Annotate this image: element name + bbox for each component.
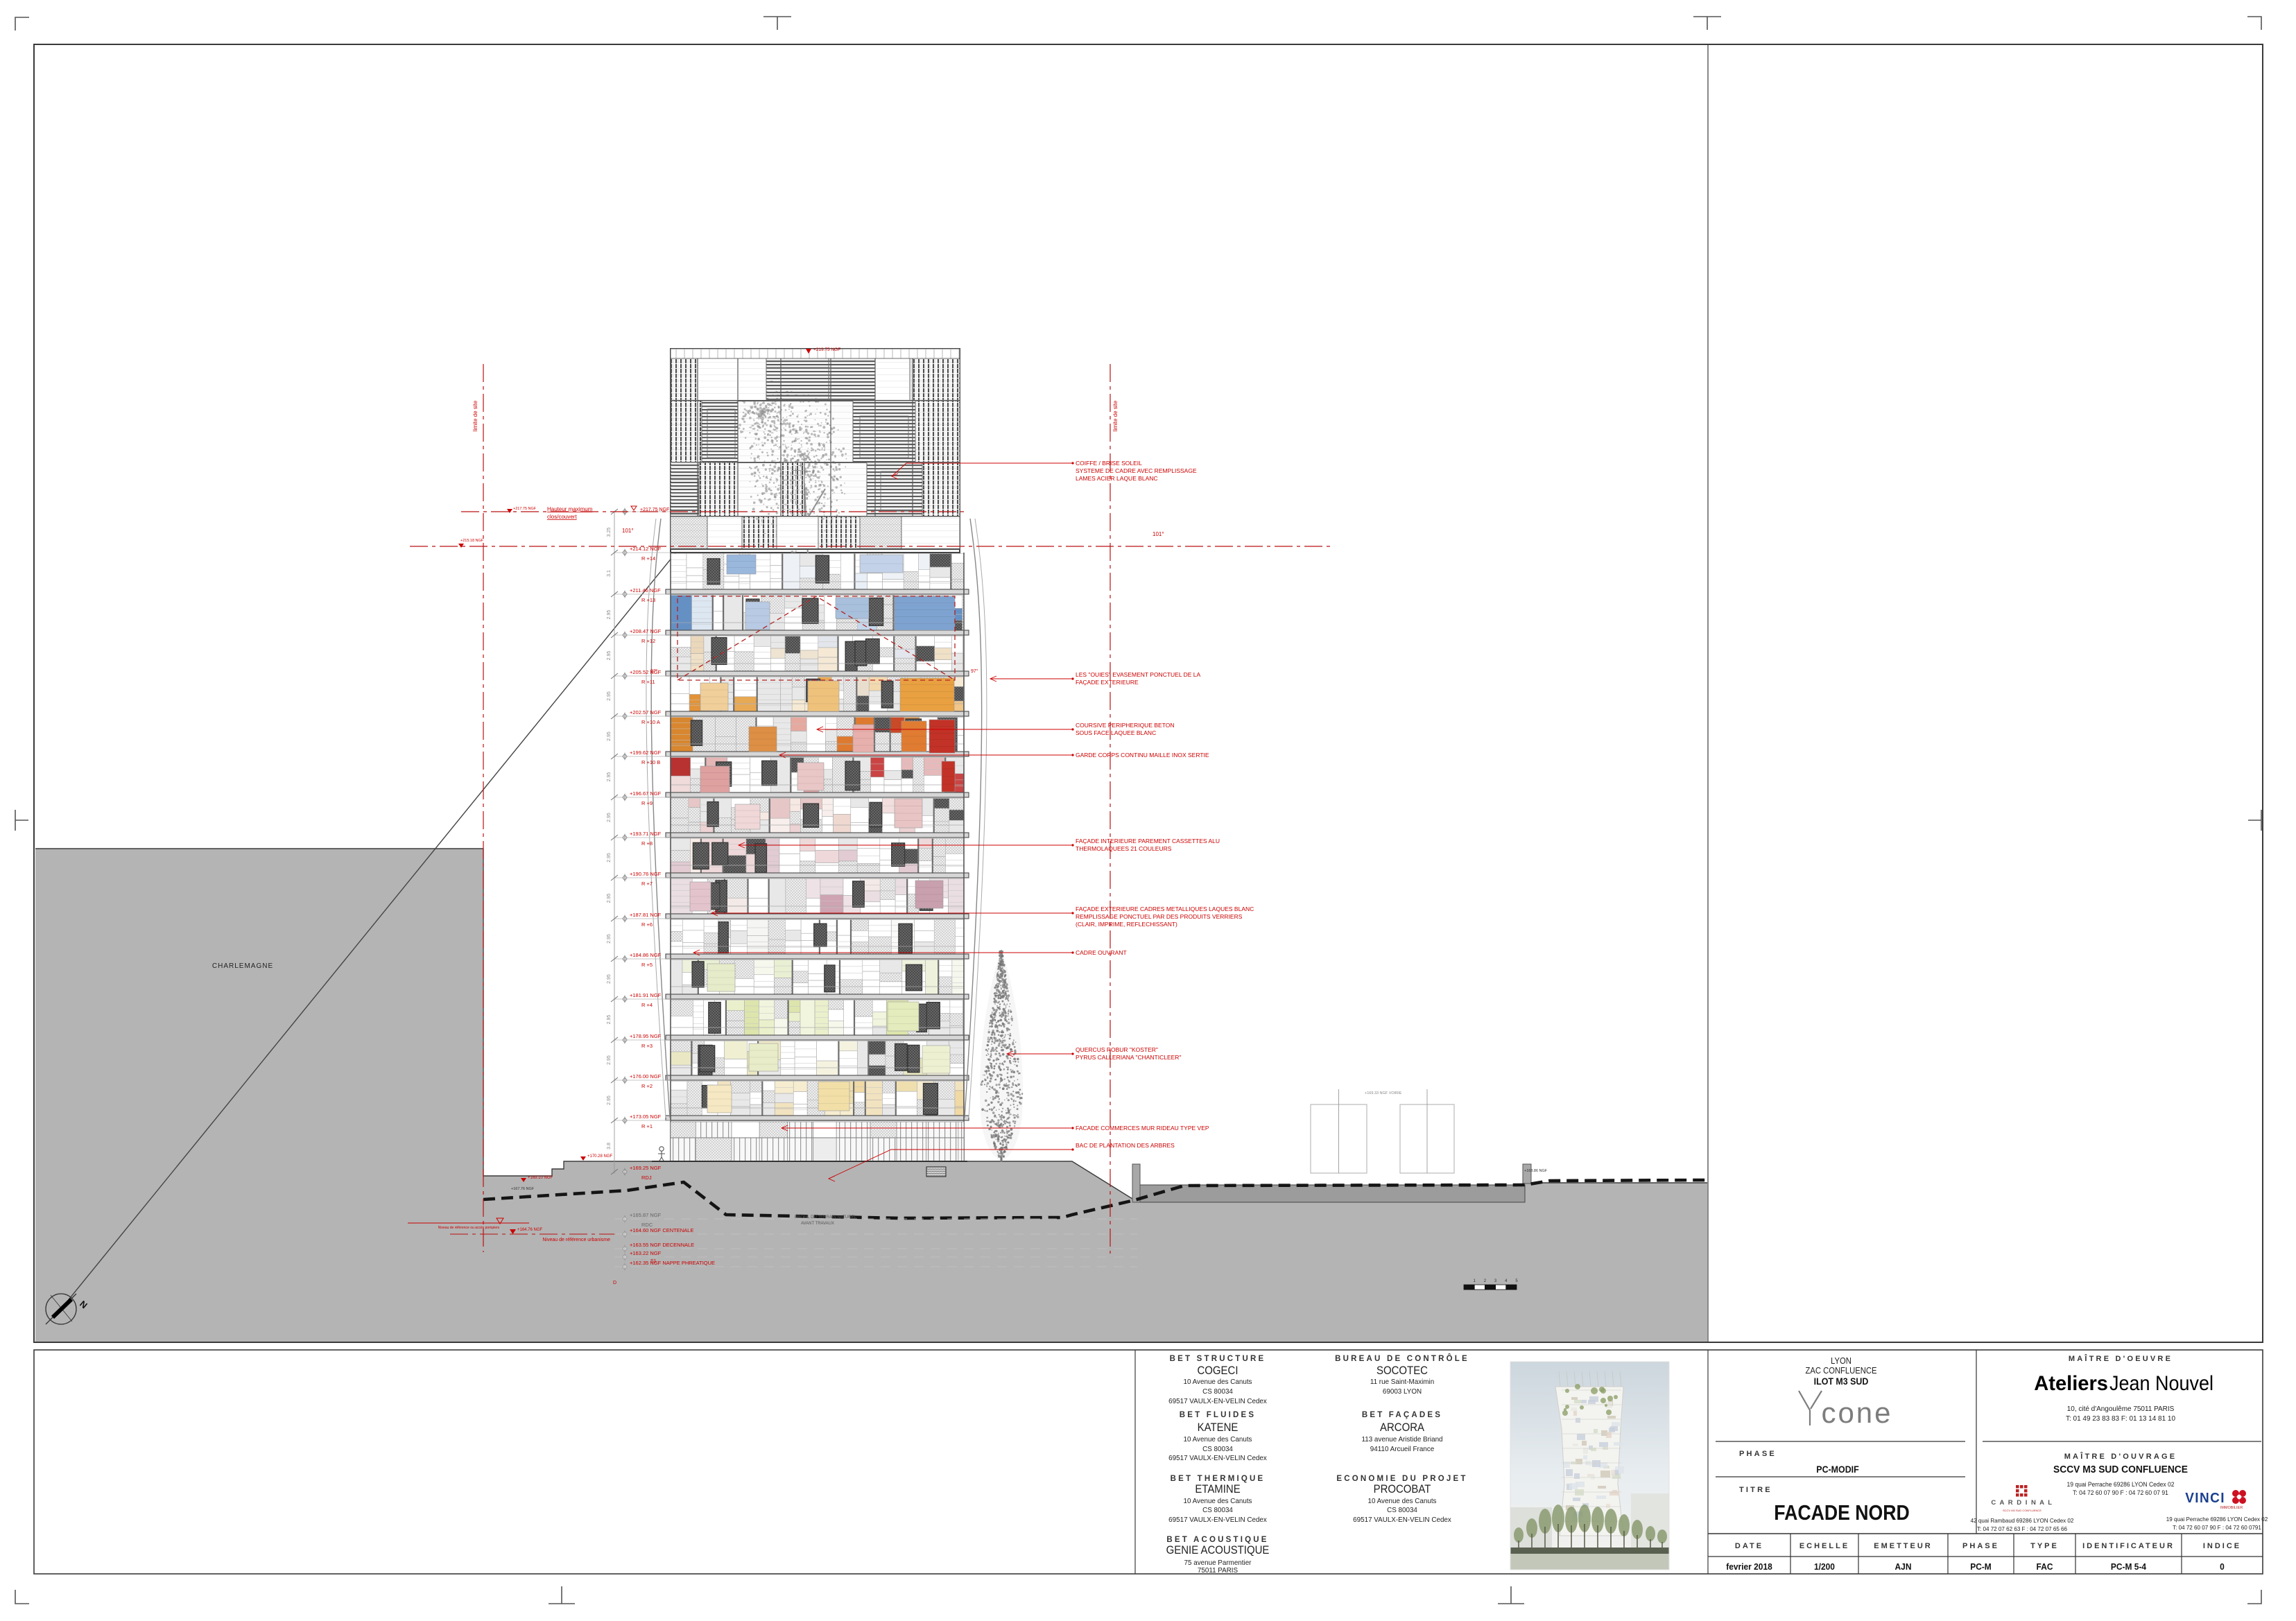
svg-text:FAÇADE EXTERIEURE: FAÇADE EXTERIEURE bbox=[1076, 679, 1139, 686]
svg-text:(CLAIR, IMPRIME, REFLECHISSANT: (CLAIR, IMPRIME, REFLECHISSANT) bbox=[1076, 921, 1177, 928]
svg-text:Niveau de référence urbanisme: Niveau de référence urbanisme bbox=[542, 1238, 610, 1242]
svg-text:+208.47 NGF: +208.47 NGF bbox=[630, 628, 662, 634]
svg-text:BET STRUCTURE: BET STRUCTURE bbox=[1170, 1355, 1266, 1363]
svg-text:69517 VAULX-EN-VELIN Cedex: 69517 VAULX-EN-VELIN Cedex bbox=[1353, 1516, 1451, 1524]
svg-text:AVANT TRAVAUX: AVANT TRAVAUX bbox=[801, 1222, 834, 1226]
svg-text:75 avenue Parmentier: 75 avenue Parmentier bbox=[1184, 1559, 1252, 1567]
svg-text:3.8: 3.8 bbox=[607, 1143, 612, 1150]
svg-text:+173.05 NGF: +173.05 NGF bbox=[630, 1113, 662, 1120]
svg-text:R +7: R +7 bbox=[641, 881, 653, 887]
svg-text:FAÇADE EXTERIEURE CADRES METAL: FAÇADE EXTERIEURE CADRES METALLIQUES LAQ… bbox=[1076, 905, 1254, 912]
svg-text:COGECI: COGECI bbox=[1198, 1364, 1238, 1377]
svg-text:INDICE: INDICE bbox=[2203, 1542, 2241, 1550]
svg-text:+169.25 NGF: +169.25 NGF bbox=[630, 1165, 662, 1171]
svg-text:VINCI: VINCI bbox=[2185, 1491, 2225, 1507]
svg-text:+163.55 NGF DECENNALE: +163.55 NGF DECENNALE bbox=[630, 1242, 694, 1248]
svg-text:QUERCUS ROBUR "KOSTER": QUERCUS ROBUR "KOSTER" bbox=[1076, 1046, 1158, 1053]
svg-text:+167.76 NGF: +167.76 NGF bbox=[511, 1187, 535, 1191]
svg-text:ETAMINE: ETAMINE bbox=[1195, 1483, 1240, 1496]
svg-text:+164.60 NGF CENTENALE: +164.60 NGF CENTENALE bbox=[630, 1227, 693, 1233]
svg-text:PHASE: PHASE bbox=[1962, 1542, 1999, 1550]
svg-text:2.95: 2.95 bbox=[607, 853, 612, 862]
svg-text:REMPLISSAGE PONCTUEL PAR DES P: REMPLISSAGE PONCTUEL PAR DES PRODUITS VE… bbox=[1076, 913, 1243, 920]
svg-text:R +14: R +14 bbox=[641, 555, 655, 562]
svg-text:2.95: 2.95 bbox=[607, 934, 612, 944]
svg-text:113 avenue Aristide Briand: 113 avenue Aristide Briand bbox=[1361, 1436, 1442, 1444]
svg-text:+162.35 NGF NAPPE PHREATIQUE: +162.35 NGF NAPPE PHREATIQUE bbox=[630, 1260, 715, 1266]
svg-text:Hauteur maximum: Hauteur maximum bbox=[547, 506, 593, 512]
svg-text:TYPE: TYPE bbox=[2030, 1542, 2059, 1550]
svg-text:R +10 A: R +10 A bbox=[641, 719, 660, 725]
svg-text:+199.62 NGF: +199.62 NGF bbox=[630, 749, 662, 756]
svg-text:+165.87 NGF: +165.87 NGF bbox=[630, 1212, 662, 1218]
svg-text:10 Avenue des Canuts: 10 Avenue des Canuts bbox=[1184, 1378, 1252, 1386]
svg-text:+215.18 NGF: +215.18 NGF bbox=[460, 539, 484, 543]
svg-text:11 rue Saint-Maximin: 11 rue Saint-Maximin bbox=[1370, 1378, 1434, 1386]
svg-text:+217.75 NGF: +217.75 NGF bbox=[513, 507, 537, 511]
svg-text:BET ACOUSTIQUE: BET ACOUSTIQUE bbox=[1166, 1536, 1268, 1544]
svg-text:2.95: 2.95 bbox=[607, 1095, 612, 1105]
svg-text:FAÇADE INTERIEURE PAREMENT CAS: FAÇADE INTERIEURE PAREMENT CASSETTES ALU bbox=[1076, 838, 1220, 844]
svg-text:THERMOLAQUEES 21 COULEURS: THERMOLAQUEES 21 COULEURS bbox=[1076, 845, 1172, 852]
svg-text:IDENTIFICATEUR: IDENTIFICATEUR bbox=[2082, 1542, 2175, 1550]
svg-text:LAMES ACIER LAQUE BLANC: LAMES ACIER LAQUE BLANC bbox=[1076, 475, 1158, 482]
svg-text:+170.28 NGF: +170.28 NGF bbox=[587, 1154, 613, 1159]
svg-text:MAÎTRE D'OEUVRE: MAÎTRE D'OEUVRE bbox=[2069, 1354, 2173, 1363]
svg-text:SOCOTEC: SOCOTEC bbox=[1376, 1364, 1428, 1377]
svg-text:S1: S1 bbox=[650, 1259, 657, 1264]
svg-text:69003 LYON: 69003 LYON bbox=[1383, 1388, 1422, 1396]
svg-text:+163.22 NGF: +163.22 NGF bbox=[630, 1250, 662, 1256]
svg-text:cone: cone bbox=[1821, 1396, 1892, 1429]
svg-text:R +10 B: R +10 B bbox=[641, 759, 660, 765]
svg-text:R +4: R +4 bbox=[641, 1002, 653, 1008]
svg-text:R +12: R +12 bbox=[641, 638, 655, 644]
svg-text:D: D bbox=[613, 1281, 616, 1285]
svg-text:ECONOMIE DU PROJET: ECONOMIE DU PROJET bbox=[1336, 1475, 1467, 1483]
svg-text:+184.86 NGF: +184.86 NGF bbox=[630, 952, 662, 958]
svg-text:clos/couvert: clos/couvert bbox=[547, 514, 577, 520]
svg-text:+196.67 NGF: +196.67 NGF bbox=[630, 790, 662, 797]
svg-text:+169.10 NGF: +169.10 NGF bbox=[528, 1176, 553, 1180]
svg-text:R +13: R +13 bbox=[641, 597, 655, 603]
svg-text:+190.76 NGF: +190.76 NGF bbox=[630, 871, 662, 877]
svg-text:2.95: 2.95 bbox=[607, 894, 612, 903]
svg-text:ZAC CONFLUENCE: ZAC CONFLUENCE bbox=[1805, 1365, 1876, 1376]
svg-text:TITRE: TITRE bbox=[1739, 1486, 1772, 1494]
svg-text:+169.33 NGF VOIRIE: +169.33 NGF VOIRIE bbox=[1365, 1091, 1402, 1095]
svg-text:RDJ: RDJ bbox=[641, 1174, 652, 1181]
svg-text:+168.86 NGF: +168.86 NGF bbox=[1524, 1169, 1548, 1173]
svg-text:3.1: 3.1 bbox=[607, 570, 612, 577]
svg-text:FACADE COMMERCES MUR RIDEAU TY: FACADE COMMERCES MUR RIDEAU TYPE VEP bbox=[1076, 1125, 1209, 1132]
svg-text:+181.91 NGF: +181.91 NGF bbox=[630, 992, 662, 998]
svg-text:R +8: R +8 bbox=[641, 840, 653, 847]
svg-text:101°: 101° bbox=[1153, 531, 1164, 537]
svg-text:DATE: DATE bbox=[1735, 1542, 1763, 1550]
svg-text:10 Avenue des Canuts: 10 Avenue des Canuts bbox=[1184, 1498, 1252, 1505]
svg-text:BAC DE PLANTATION DES ARBRES: BAC DE PLANTATION DES ARBRES bbox=[1076, 1142, 1175, 1149]
svg-text:CS 80034: CS 80034 bbox=[1202, 1446, 1233, 1453]
svg-text:R +9: R +9 bbox=[641, 800, 653, 806]
svg-text:T: 04 72 60 07 90 F : 04 72 6: T: 04 72 60 07 90 F : 04 72 60 0791 bbox=[2173, 1524, 2261, 1531]
svg-text:FACADE NORD: FACADE NORD bbox=[1774, 1501, 1909, 1525]
svg-text:+178.95 NGF: +178.95 NGF bbox=[630, 1033, 662, 1039]
svg-text:PC-M: PC-M bbox=[1970, 1562, 1992, 1572]
svg-text:0: 0 bbox=[2220, 1562, 2225, 1572]
svg-text:SOUS FACE LAQUEE BLANC: SOUS FACE LAQUEE BLANC bbox=[1076, 729, 1156, 736]
svg-text:SCCV M3 SUD CONFLUENCE: SCCV M3 SUD CONFLUENCE bbox=[2003, 1509, 2042, 1512]
svg-text:+219.75 NGF: +219.75 NGF bbox=[813, 347, 840, 352]
svg-text:AJN: AJN bbox=[1895, 1562, 1912, 1572]
svg-text:COURSIVE PERIPHERIQUE BETON: COURSIVE PERIPHERIQUE BETON bbox=[1076, 722, 1174, 729]
svg-text:2.95: 2.95 bbox=[607, 772, 612, 782]
svg-text:BUREAU DE CONTRÔLE: BUREAU DE CONTRÔLE bbox=[1335, 1354, 1469, 1363]
svg-text:97°: 97° bbox=[971, 668, 978, 674]
svg-text:10 Avenue des Canuts: 10 Avenue des Canuts bbox=[1368, 1498, 1437, 1505]
svg-text:T: 04 72 60 07 90 F : 04 72 60: T: 04 72 60 07 90 F : 04 72 60 07 91 bbox=[2073, 1489, 2168, 1496]
svg-text:ARCORA: ARCORA bbox=[1380, 1421, 1424, 1434]
svg-text:R +6: R +6 bbox=[641, 921, 653, 928]
svg-text:+211.46 NGF: +211.46 NGF bbox=[630, 587, 661, 593]
svg-text:2.95: 2.95 bbox=[607, 974, 612, 984]
svg-text:2.95: 2.95 bbox=[607, 813, 612, 822]
svg-text:PHASE: PHASE bbox=[1739, 1450, 1777, 1458]
svg-text:CS 80034: CS 80034 bbox=[1202, 1388, 1233, 1396]
svg-text:R +3: R +3 bbox=[641, 1043, 653, 1049]
svg-text:BET THERMIQUE: BET THERMIQUE bbox=[1171, 1475, 1266, 1483]
svg-text:T: 04 72 07 62 63 F : 04 72 0: T: 04 72 07 62 63 F : 04 72 07 65 66 bbox=[1977, 1525, 2067, 1532]
svg-text:Jean Nouvel: Jean Nouvel bbox=[2109, 1372, 2213, 1396]
svg-text:+202.57 NGF: +202.57 NGF bbox=[630, 709, 662, 716]
svg-text:2.95: 2.95 bbox=[607, 731, 612, 741]
svg-text:T: 01 49 23 83 83 F: 01 13 1: T: 01 49 23 83 83 F: 01 13 14 81 10 bbox=[2066, 1415, 2175, 1423]
svg-text:CADRE OUVRANT: CADRE OUVRANT bbox=[1076, 949, 1127, 956]
svg-text:limite de site: limite de site bbox=[1112, 400, 1119, 431]
svg-text:94110 Arcueil France: 94110 Arcueil France bbox=[1370, 1446, 1435, 1453]
svg-text:2.95: 2.95 bbox=[607, 1055, 612, 1065]
svg-text:fevrier 2018: fevrier 2018 bbox=[1726, 1562, 1772, 1572]
svg-text:SYSTEME DE CADRE AVEC REMPLISS: SYSTEME DE CADRE AVEC REMPLISSAGE bbox=[1076, 467, 1197, 474]
svg-text:+164.76 NGF: +164.76 NGF bbox=[517, 1228, 543, 1232]
svg-text:PROCOBAT: PROCOBAT bbox=[1374, 1483, 1431, 1496]
svg-text:BET FAÇADES: BET FAÇADES bbox=[1362, 1411, 1442, 1419]
svg-text:2.95: 2.95 bbox=[607, 691, 612, 701]
svg-text:2.95: 2.95 bbox=[607, 610, 612, 620]
svg-text:+176.00 NGF: +176.00 NGF bbox=[630, 1073, 662, 1080]
svg-text:3.25: 3.25 bbox=[607, 528, 612, 537]
svg-text:PYRUS CALLERIANA "CHANTICLEER": PYRUS CALLERIANA "CHANTICLEER" bbox=[1076, 1054, 1181, 1061]
svg-text:R +5: R +5 bbox=[641, 962, 653, 968]
svg-text:Ateliers: Ateliers bbox=[2034, 1372, 2108, 1395]
svg-text:LYON: LYON bbox=[1831, 1355, 1852, 1366]
svg-text:limite de site: limite de site bbox=[472, 400, 478, 431]
svg-text:+193.71 NGF: +193.71 NGF bbox=[630, 831, 662, 837]
svg-text:69517 VAULX-EN-VELIN Cedex: 69517 VAULX-EN-VELIN Cedex bbox=[1168, 1398, 1267, 1405]
svg-text:GARDE CORPS CONTINU MAILLE INO: GARDE CORPS CONTINU MAILLE INOX SERTIE bbox=[1076, 752, 1209, 759]
svg-text:EMETTEUR: EMETTEUR bbox=[1874, 1542, 1933, 1550]
svg-text:CS 80034: CS 80034 bbox=[1202, 1507, 1233, 1514]
svg-text:IMMOBILIER: IMMOBILIER bbox=[2220, 1506, 2243, 1510]
svg-text:2.95: 2.95 bbox=[607, 1015, 612, 1025]
svg-text:97°: 97° bbox=[650, 668, 658, 674]
svg-text:PC-M 5-4: PC-M 5-4 bbox=[2111, 1562, 2146, 1572]
svg-text:FAC: FAC bbox=[2037, 1562, 2053, 1572]
svg-text:KATENE: KATENE bbox=[1198, 1421, 1238, 1434]
svg-text:CS 80034: CS 80034 bbox=[1387, 1507, 1417, 1514]
svg-text:SCCV M3 SUD CONFLUENCE: SCCV M3 SUD CONFLUENCE bbox=[2053, 1464, 2188, 1476]
svg-text:BET FLUIDES: BET FLUIDES bbox=[1180, 1411, 1257, 1419]
svg-text:CHARLEMAGNE: CHARLEMAGNE bbox=[212, 962, 273, 970]
svg-text:ECHELLE: ECHELLE bbox=[1799, 1542, 1849, 1550]
svg-text:101°: 101° bbox=[622, 528, 634, 534]
svg-text:+187.81 NGF: +187.81 NGF bbox=[630, 912, 662, 918]
svg-text:C A R D I N A L: C A R D I N A L bbox=[1991, 1499, 2053, 1507]
svg-text:COIFFE / BRISE SOLEIL: COIFFE / BRISE SOLEIL bbox=[1076, 460, 1142, 467]
svg-text:R +1: R +1 bbox=[641, 1123, 653, 1129]
svg-text:69517 VAULX-EN-VELIN Cedex: 69517 VAULX-EN-VELIN Cedex bbox=[1168, 1455, 1267, 1462]
svg-text:LES "OUIES" EVASEMENT PONCTUEL: LES "OUIES" EVASEMENT PONCTUEL DE LA bbox=[1076, 671, 1201, 678]
svg-text:2.95: 2.95 bbox=[607, 651, 612, 661]
svg-text:ILOT M3 SUD: ILOT M3 SUD bbox=[1814, 1376, 1869, 1387]
svg-text:10 Avenue des Canuts: 10 Avenue des Canuts bbox=[1184, 1436, 1252, 1444]
svg-text:R +2: R +2 bbox=[641, 1083, 653, 1089]
svg-text:19 quai Perrache 69286 LYON Ce: 19 quai Perrache 69286 LYON Cedex 02 bbox=[2166, 1516, 2268, 1523]
svg-text:MAÎTRE D'OUVRAGE: MAÎTRE D'OUVRAGE bbox=[2064, 1452, 2177, 1461]
svg-text:19 quai Perrache 69286 LYON Ce: 19 quai Perrache 69286 LYON Cedex 02 bbox=[2066, 1481, 2174, 1488]
svg-text:Niveau de référence ou accès p: Niveau de référence ou accès pompiers bbox=[438, 1226, 500, 1230]
svg-text:PC-MODIF: PC-MODIF bbox=[1816, 1464, 1858, 1475]
svg-text:R +11: R +11 bbox=[641, 679, 655, 685]
svg-text:69517 VAULX-EN-VELIN Cedex: 69517 VAULX-EN-VELIN Cedex bbox=[1168, 1516, 1267, 1524]
svg-text:GENIE ACOUSTIQUE: GENIE ACOUSTIQUE bbox=[1166, 1544, 1270, 1557]
svg-text:42 quai Rambaud 69286 LYON Ced: 42 quai Rambaud 69286 LYON Cedex 02 bbox=[1971, 1517, 2074, 1524]
svg-text:10, cité d'Angoulême 75011 PAR: 10, cité d'Angoulême 75011 PARIS bbox=[2067, 1405, 2175, 1413]
svg-text:1/200: 1/200 bbox=[1814, 1562, 1835, 1572]
